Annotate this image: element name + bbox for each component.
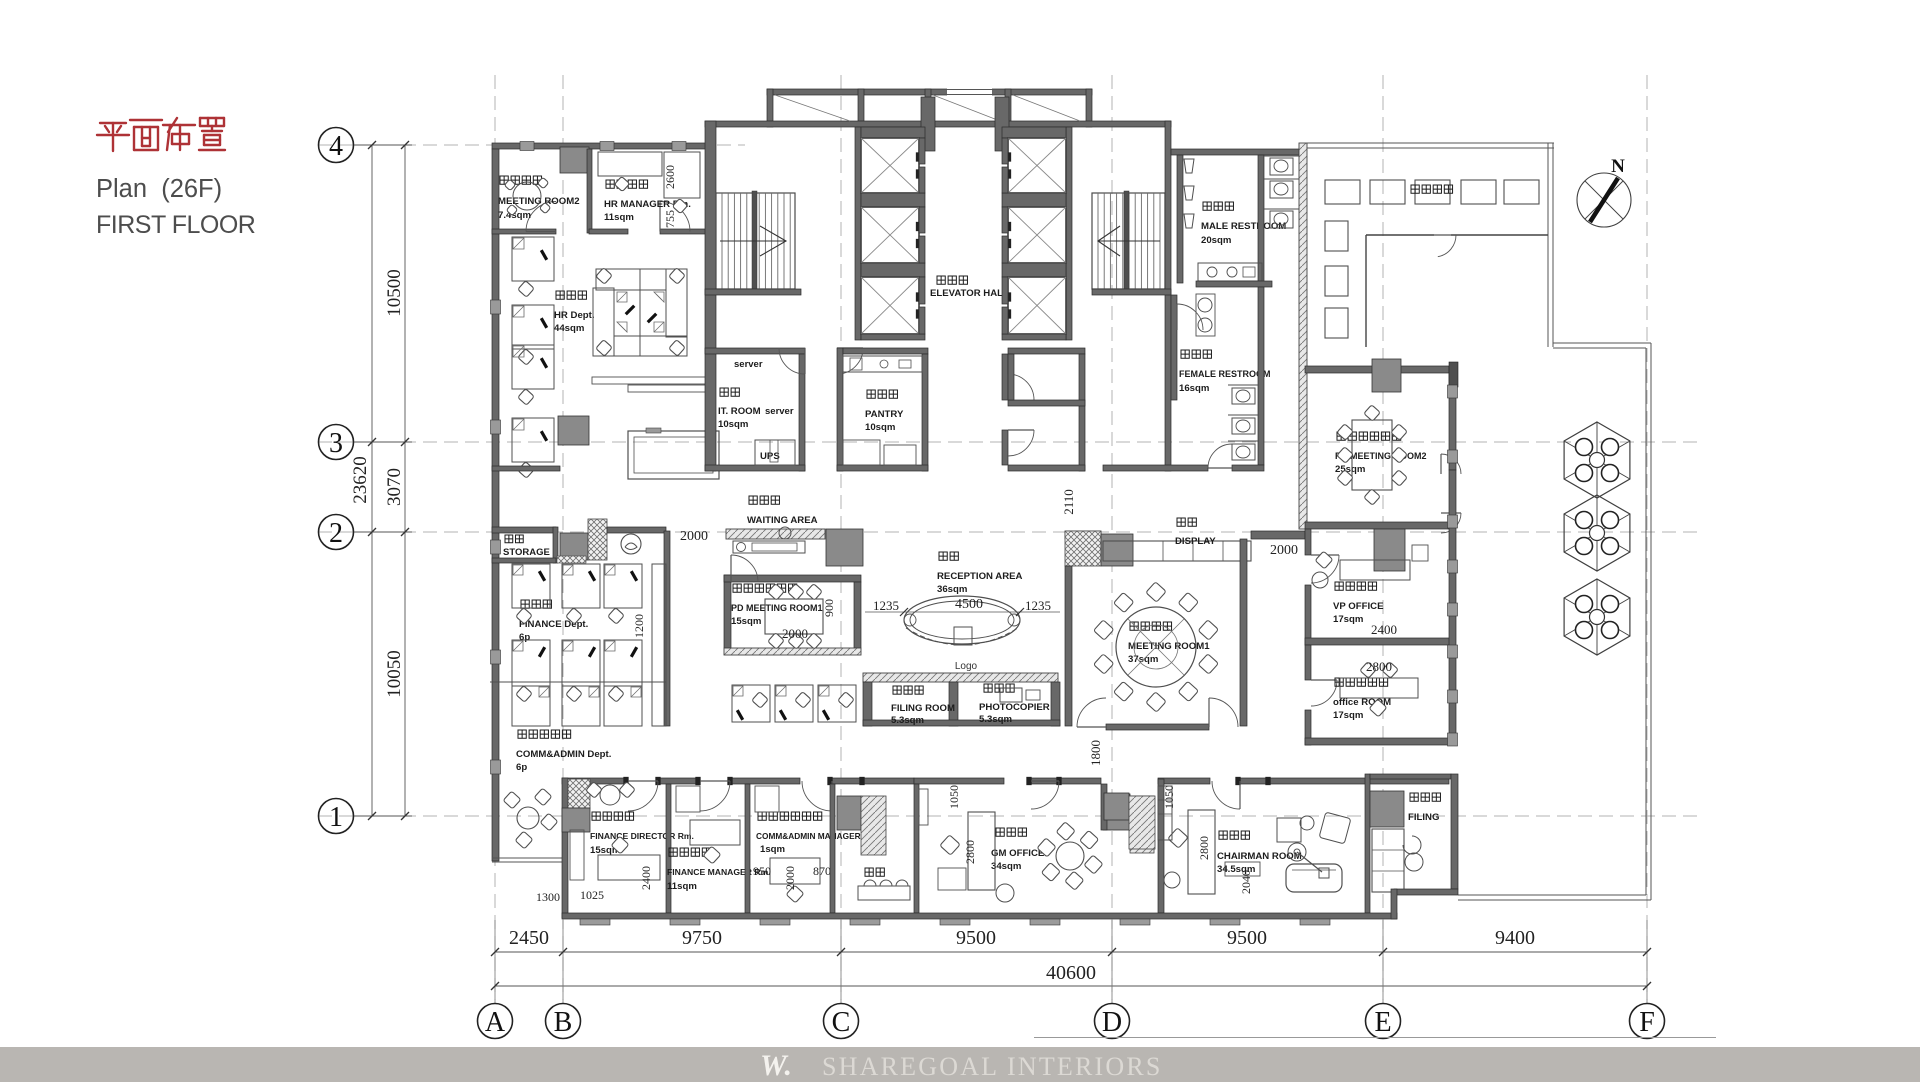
svg-text:11sqm: 11sqm <box>667 881 697 892</box>
svg-text:RECEPTION AREA: RECEPTION AREA <box>937 571 1023 582</box>
svg-text:34sqm: 34sqm <box>991 861 1021 872</box>
svg-text:PHOTOCOPIER: PHOTOCOPIER <box>979 702 1050 713</box>
svg-text:25sqm: 25sqm <box>1335 464 1365 475</box>
svg-text:4: 4 <box>329 131 343 162</box>
svg-text:3: 3 <box>329 428 343 459</box>
svg-text:5.3sqm: 5.3sqm <box>891 715 924 726</box>
svg-text:9750: 9750 <box>682 927 722 949</box>
svg-text:17sqm: 17sqm <box>1333 710 1363 721</box>
svg-text:FINANCE DIRECTOR Rm.: FINANCE DIRECTOR Rm. <box>590 831 694 841</box>
svg-text:9500: 9500 <box>1227 927 1267 949</box>
svg-text:F: F <box>1639 1007 1655 1038</box>
svg-text:2400: 2400 <box>1371 622 1397 637</box>
svg-text:40600: 40600 <box>1046 962 1096 984</box>
svg-text:1025: 1025 <box>580 888 604 902</box>
svg-text:D: D <box>1102 1007 1122 1038</box>
svg-text:2110: 2110 <box>1061 489 1076 515</box>
svg-text:MALE RESTROOM: MALE RESTROOM <box>1201 221 1286 232</box>
svg-text:2040: 2040 <box>1239 870 1253 894</box>
svg-text:9500: 9500 <box>956 927 996 949</box>
svg-text:20sqm: 20sqm <box>1201 235 1231 246</box>
svg-text:2000: 2000 <box>1270 543 1298 558</box>
svg-text:16sqm: 16sqm <box>1179 383 1209 394</box>
svg-text:FILING ROOM: FILING ROOM <box>891 703 955 714</box>
svg-text:6p: 6p <box>516 762 527 773</box>
svg-text:IT. ROOM: IT. ROOM <box>718 406 761 417</box>
svg-text:2600: 2600 <box>663 165 677 189</box>
svg-text:2000: 2000 <box>680 529 708 544</box>
svg-text:3070: 3070 <box>384 468 405 506</box>
svg-text:900: 900 <box>822 599 836 617</box>
svg-text:FILING: FILING <box>1408 812 1439 823</box>
svg-text:1235: 1235 <box>873 598 899 613</box>
svg-text:VP OFFICE: VP OFFICE <box>1333 601 1384 612</box>
svg-text:1300: 1300 <box>536 890 560 904</box>
svg-text:9400: 9400 <box>1495 927 1535 949</box>
svg-text:2: 2 <box>329 518 343 549</box>
svg-text:server: server <box>765 406 794 417</box>
svg-text:server: server <box>734 359 763 370</box>
svg-text:B: B <box>554 1007 573 1038</box>
svg-text:1050: 1050 <box>947 785 961 809</box>
svg-text:950: 950 <box>753 864 771 878</box>
svg-text:15sqm: 15sqm <box>731 616 761 627</box>
svg-text:E: E <box>1374 1007 1391 1038</box>
svg-text:WAITING AREA: WAITING AREA <box>747 515 818 526</box>
svg-text:C: C <box>832 1007 851 1038</box>
svg-text:A: A <box>485 1007 506 1038</box>
svg-text:36sqm: 36sqm <box>937 584 967 595</box>
svg-text:2800: 2800 <box>1197 836 1211 860</box>
svg-text:MEETING ROOM1: MEETING ROOM1 <box>1128 641 1210 652</box>
svg-text:GM OFFICE: GM OFFICE <box>991 848 1045 859</box>
svg-text:FIRST FLOOR: FIRST FLOOR <box>96 211 255 239</box>
svg-text:10500: 10500 <box>384 269 405 317</box>
svg-text:2450: 2450 <box>509 927 549 949</box>
svg-text:2800: 2800 <box>1366 659 1392 674</box>
svg-text:11sqm: 11sqm <box>604 212 634 223</box>
svg-text:Logo: Logo <box>955 661 978 672</box>
svg-text:10sqm: 10sqm <box>718 419 748 430</box>
svg-text:17sqm: 17sqm <box>1333 614 1363 625</box>
svg-text:2800: 2800 <box>963 840 977 864</box>
svg-text:870: 870 <box>813 864 831 878</box>
svg-text:PANTRY: PANTRY <box>865 409 904 420</box>
svg-text:2400: 2400 <box>639 866 653 890</box>
svg-text:23620: 23620 <box>350 456 371 504</box>
svg-text:44sqm: 44sqm <box>554 323 584 334</box>
svg-text:PD MEETING ROOM1: PD MEETING ROOM1 <box>731 603 823 613</box>
svg-text:2000: 2000 <box>783 866 797 890</box>
svg-text:1: 1 <box>329 802 343 833</box>
svg-text:10sqm: 10sqm <box>865 422 895 433</box>
svg-text:2000: 2000 <box>782 626 808 641</box>
svg-text:10050: 10050 <box>384 650 405 698</box>
svg-text:1235: 1235 <box>1025 598 1051 613</box>
svg-text:755: 755 <box>663 210 677 228</box>
svg-text:1800: 1800 <box>1088 740 1103 766</box>
svg-text:COMM&ADMIN Dept.: COMM&ADMIN Dept. <box>516 749 611 760</box>
svg-text:4500: 4500 <box>955 597 983 612</box>
svg-text:HR Dept.: HR Dept. <box>554 310 595 321</box>
svg-text:1200: 1200 <box>632 614 646 638</box>
svg-text:DISPLAY: DISPLAY <box>1175 536 1216 547</box>
svg-text:1sqm: 1sqm <box>760 844 785 855</box>
svg-text:1050: 1050 <box>1162 785 1176 809</box>
svg-text:STORAGE: STORAGE <box>503 547 550 558</box>
svg-text:Plan (26F): Plan (26F) <box>96 175 222 203</box>
svg-text:COMM&ADMIN MANAGER Rm.: COMM&ADMIN MANAGER Rm. <box>756 831 879 841</box>
svg-text:ELEVATOR HALL: ELEVATOR HALL <box>930 288 1009 299</box>
svg-text:5.3sqm: 5.3sqm <box>979 714 1012 725</box>
svg-text:FEMALE RESTROOM: FEMALE RESTROOM <box>1179 369 1271 379</box>
svg-text:N: N <box>1611 156 1625 177</box>
